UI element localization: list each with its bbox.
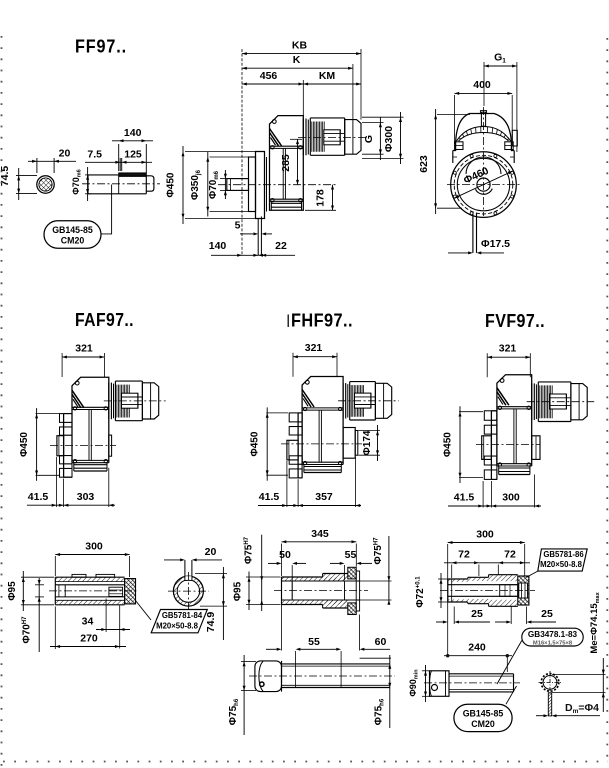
- svg-text:Φ174: Φ174: [362, 430, 373, 455]
- svg-text:140: 140: [209, 240, 227, 252]
- svg-text:125: 125: [124, 148, 142, 160]
- svg-text:5: 5: [235, 220, 241, 232]
- svg-text:Φ450: Φ450: [19, 432, 30, 457]
- svg-text:300: 300: [476, 529, 494, 541]
- svg-text:303: 303: [77, 491, 95, 503]
- svg-text:22: 22: [275, 240, 287, 252]
- svg-text:178: 178: [315, 189, 327, 207]
- svg-text:72: 72: [504, 549, 516, 561]
- svg-text:CM20: CM20: [471, 719, 495, 729]
- svg-text:K: K: [293, 54, 301, 66]
- svg-text:74.9: 74.9: [205, 612, 217, 633]
- svg-text:GB145-85: GB145-85: [463, 709, 504, 719]
- svg-text:41.5: 41.5: [28, 491, 49, 503]
- svg-text:357: 357: [315, 491, 333, 503]
- svg-text:321: 321: [499, 343, 517, 355]
- svg-text:285: 285: [280, 154, 292, 172]
- svg-text:270: 270: [80, 633, 98, 645]
- svg-text:623: 623: [418, 155, 430, 173]
- svg-text:300: 300: [502, 492, 520, 504]
- svg-text:240: 240: [468, 642, 486, 654]
- svg-text:M20×50-8.8: M20×50-8.8: [156, 622, 198, 631]
- svg-text:KB: KB: [292, 40, 308, 52]
- svg-text:72: 72: [458, 549, 470, 561]
- svg-text:25: 25: [471, 608, 483, 620]
- svg-text:FAF97..: FAF97..: [75, 309, 134, 330]
- svg-text:GB5781-84: GB5781-84: [162, 611, 203, 620]
- svg-text:M20×50-8.8: M20×50-8.8: [540, 560, 582, 569]
- svg-text:FF97..: FF97..: [75, 36, 127, 57]
- svg-text:Φ95: Φ95: [233, 581, 244, 601]
- svg-text:20: 20: [205, 546, 217, 558]
- svg-text:345: 345: [311, 528, 329, 540]
- svg-text:321: 321: [75, 343, 93, 355]
- svg-text:55: 55: [345, 549, 357, 561]
- svg-text:400: 400: [473, 79, 491, 91]
- svg-text:Dm=Φ4: Dm=Φ4: [565, 702, 599, 715]
- svg-text:Φ450: Φ450: [250, 431, 261, 456]
- svg-text:456: 456: [260, 70, 278, 82]
- svg-text:321: 321: [305, 342, 323, 354]
- svg-text:50: 50: [279, 549, 291, 561]
- svg-text:7.5: 7.5: [87, 148, 102, 160]
- svg-text:GB5781-86: GB5781-86: [543, 550, 584, 559]
- svg-text:Φ300: Φ300: [383, 126, 395, 152]
- svg-text:55: 55: [308, 636, 320, 648]
- svg-text:FHF97..: FHF97..: [291, 310, 353, 331]
- svg-text:25: 25: [541, 608, 553, 620]
- svg-text:FVF97..: FVF97..: [485, 310, 545, 331]
- svg-text:300: 300: [85, 541, 103, 553]
- svg-text:KM: KM: [319, 70, 336, 82]
- svg-text:60: 60: [375, 636, 387, 648]
- svg-text:GB145-85: GB145-85: [52, 225, 93, 235]
- svg-text:GB3478.1-83: GB3478.1-83: [528, 630, 578, 639]
- svg-text:41.5: 41.5: [259, 491, 280, 503]
- svg-text:M16×1.5×75×8: M16×1.5×75×8: [533, 641, 573, 647]
- svg-text:41.5: 41.5: [454, 492, 475, 504]
- svg-text:G: G: [363, 135, 375, 143]
- svg-text:Φ450: Φ450: [166, 172, 177, 197]
- svg-text:CM20: CM20: [61, 236, 85, 246]
- svg-text:140: 140: [124, 127, 142, 139]
- svg-text:34: 34: [82, 616, 94, 628]
- svg-text:20: 20: [59, 148, 71, 160]
- svg-text:Φ450: Φ450: [443, 432, 454, 457]
- svg-text:Φ17.5: Φ17.5: [481, 238, 510, 250]
- svg-text:Φ95: Φ95: [7, 581, 18, 601]
